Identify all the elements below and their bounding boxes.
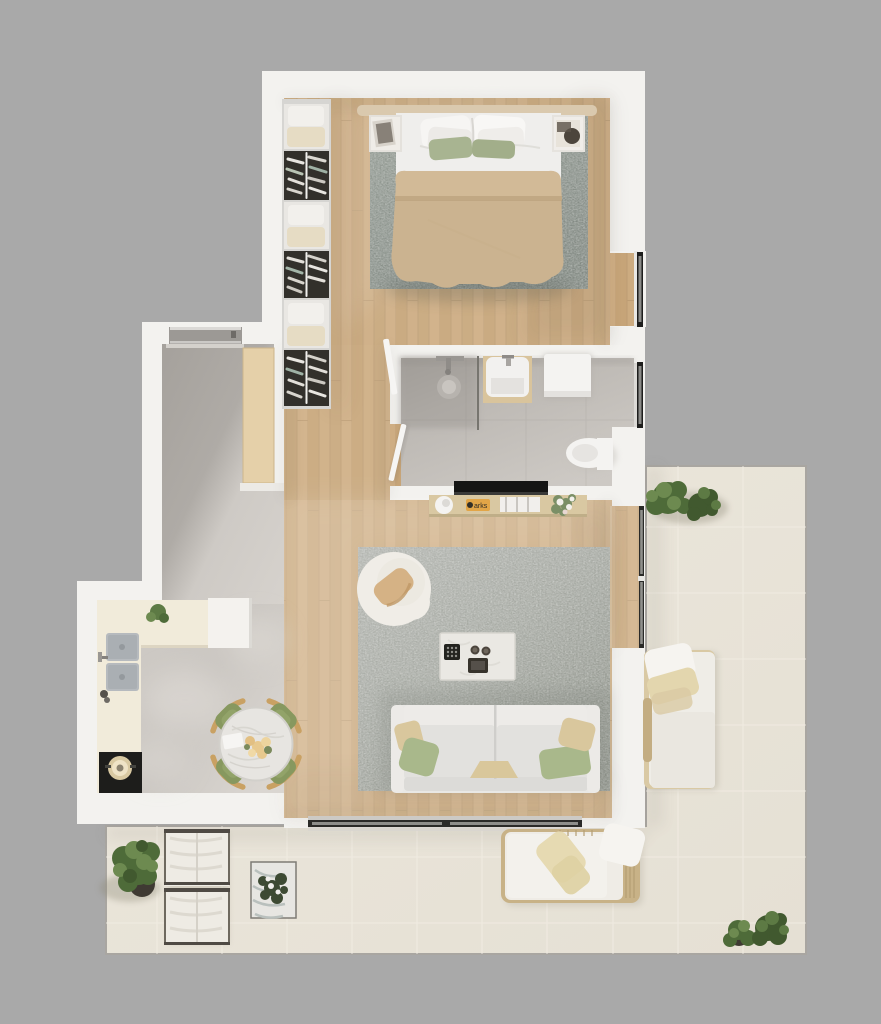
- svg-text:arks: arks: [474, 503, 488, 510]
